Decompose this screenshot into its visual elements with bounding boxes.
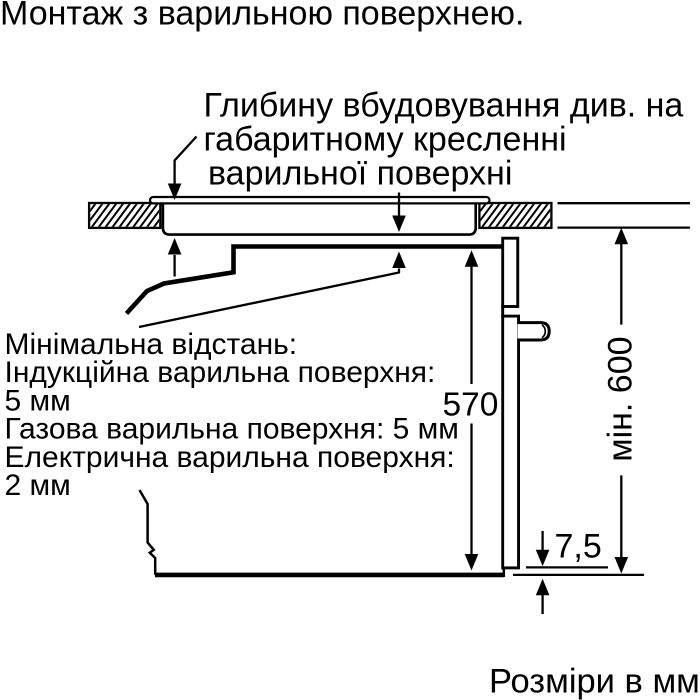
svg-text:2 мм: 2 мм	[5, 469, 71, 502]
svg-text:Електрична варильна поверхня:: Електрична варильна поверхня:	[5, 441, 455, 474]
svg-text:мін. 600: мін. 600	[601, 336, 639, 461]
svg-text:габаритному кресленні: габаритному кресленні	[204, 121, 567, 159]
svg-text:7,5: 7,5	[555, 528, 602, 566]
svg-text:варильної поверхні: варильної поверхні	[208, 155, 512, 193]
svg-text:Монтаж з варильною поверхнею.: Монтаж з варильною поверхнею.	[0, 0, 524, 33]
svg-text:Глибину вбудовування див. на: Глибину вбудовування див. на	[204, 86, 684, 124]
svg-text:570: 570	[443, 387, 499, 424]
svg-text:Розміри в мм: Розміри в мм	[489, 663, 700, 700]
